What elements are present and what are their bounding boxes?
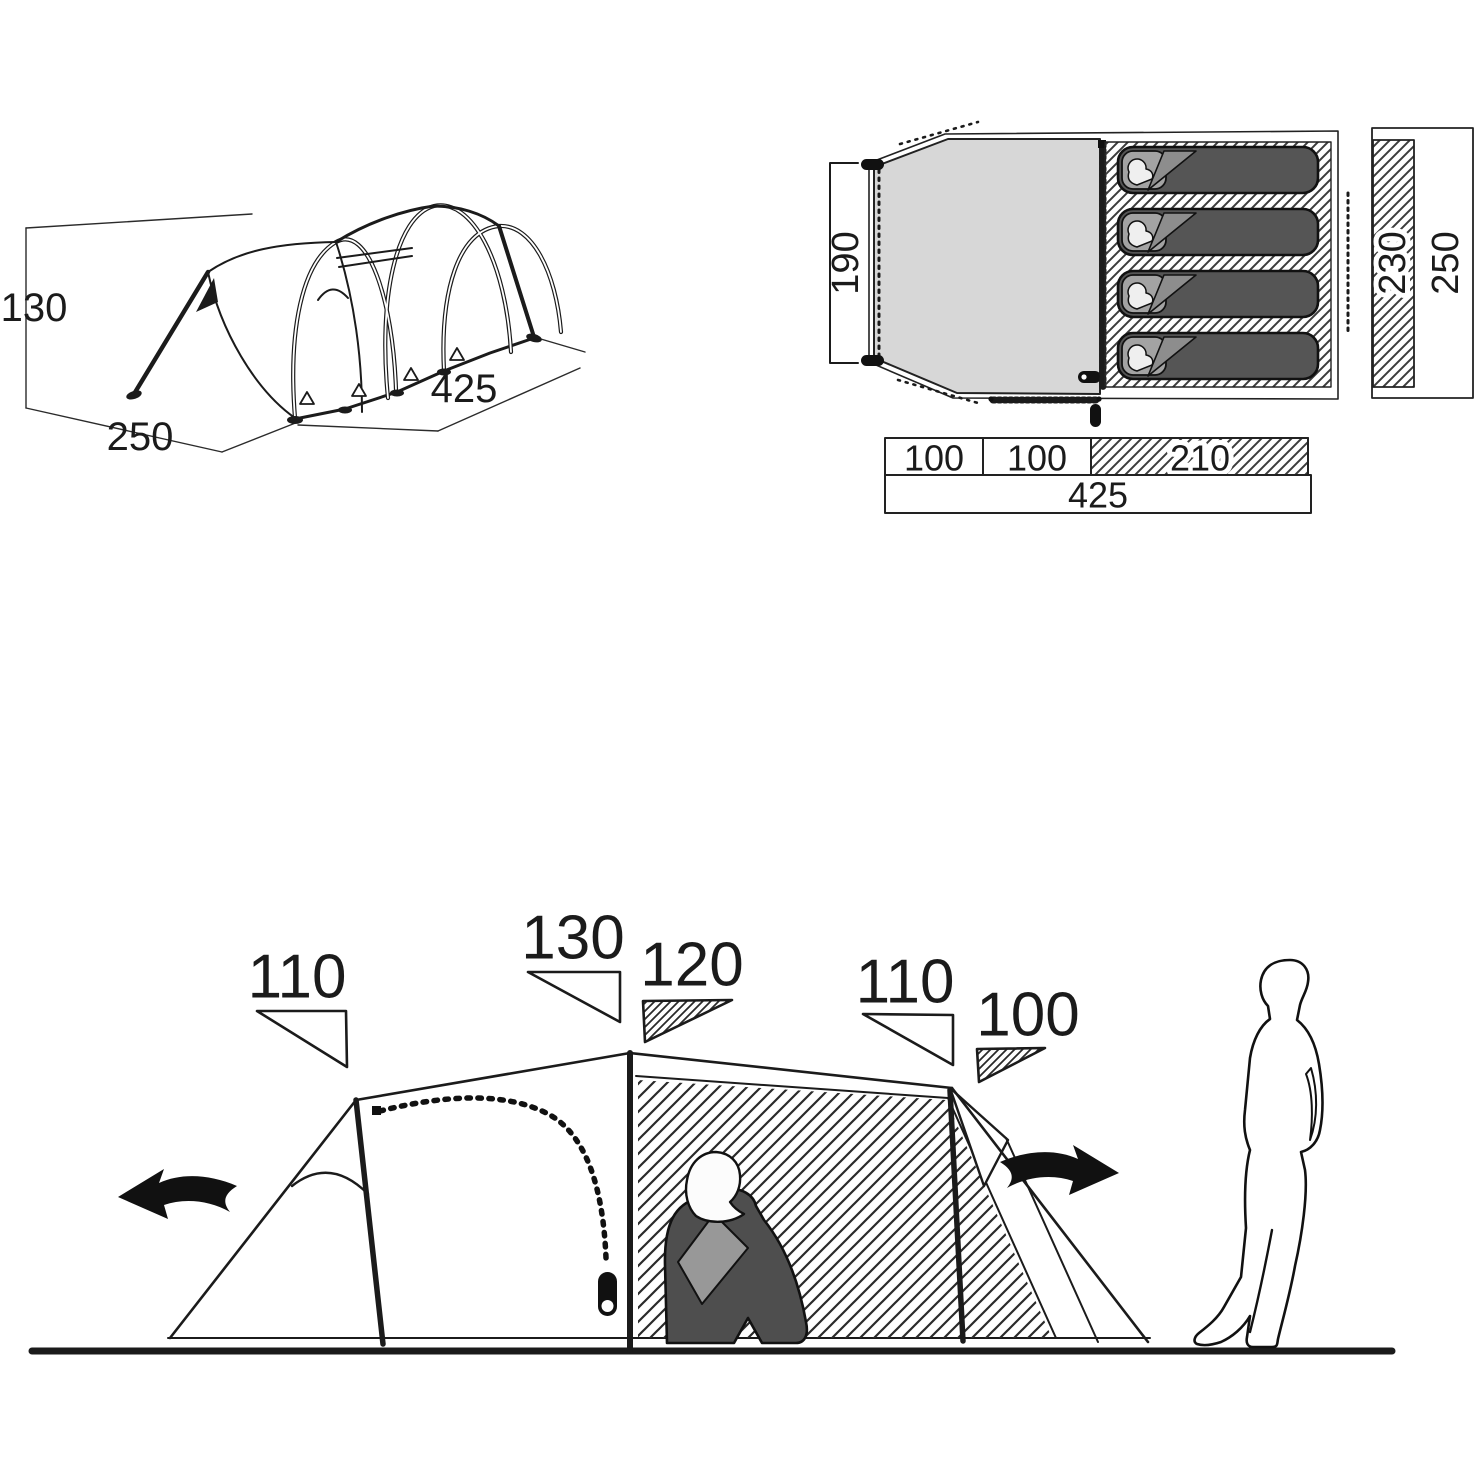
inner-dome-arc: [292, 1173, 368, 1194]
tent-dimension-diagram: 130 250 425: [0, 0, 1484, 1484]
sleeping-bag: [1118, 333, 1318, 379]
inner-width-label: 230: [1372, 231, 1414, 294]
callout-label-inner-peak: 120: [640, 931, 743, 1000]
width-dimension-label: 250: [107, 415, 174, 459]
elevation-view: 110 130 120 110 100: [32, 904, 1392, 1352]
sleeping-bag: [1118, 209, 1318, 255]
callout-flag-hatched: [643, 1000, 732, 1042]
left-guy-line: [134, 272, 208, 394]
floor-plan: 190 230 250 100 100 210 425: [825, 122, 1473, 516]
left-pole: [356, 1100, 383, 1344]
door-zipper-dashes: [380, 1098, 606, 1258]
total-length-label: 425: [1068, 475, 1128, 516]
zipper-pull-bottom: [861, 355, 884, 366]
standing-person: [1195, 960, 1323, 1347]
left-ridge: [356, 1053, 630, 1100]
height-callouts: 110 130 120 110 100: [248, 904, 1080, 1083]
callout-label-porch-left: 110: [248, 943, 347, 1012]
airflow-arrow-right: [1000, 1145, 1119, 1195]
callout-label-peak: 130: [521, 904, 624, 973]
sleeping-bag: [1118, 147, 1318, 193]
left-vestibule-slope: [170, 1100, 356, 1338]
length-dimension-label: 425: [431, 367, 498, 411]
sleeping-bag: [1118, 271, 1318, 317]
zipper-pull-top: [861, 159, 884, 170]
callout-label-rear-pole: 110: [856, 948, 955, 1017]
callout-flag: [528, 972, 620, 1022]
porch-depth-label: 190: [825, 231, 867, 294]
airflow-arrow-left: [118, 1169, 237, 1219]
seated-person-head: [686, 1152, 744, 1222]
length-measurement-bars: 100 100 210 425: [885, 438, 1311, 516]
tent-3d-drawing: [125, 205, 585, 424]
height-dimension-label: 130: [1, 286, 68, 330]
outer-width-label: 250: [1425, 231, 1467, 294]
porch-groundsheet: [874, 139, 1100, 394]
callout-flag: [863, 1014, 953, 1065]
callout-flag: [257, 1011, 347, 1067]
door-zipper-pull: [598, 1272, 617, 1316]
callout-label-inner-rear: 100: [976, 981, 1079, 1050]
segment-label-porch2: 100: [1007, 438, 1067, 479]
front-door-zipper-pull: [1090, 404, 1101, 427]
segment-label-porch1: 100: [904, 438, 964, 479]
callout-flag-hatched: [977, 1048, 1045, 1082]
diagram-svg: 130 250 425: [0, 0, 1484, 1484]
right-guy-line: [499, 226, 534, 337]
perspective-view: 130 250 425: [1, 205, 585, 459]
segment-label-inner: 210: [1170, 438, 1230, 479]
